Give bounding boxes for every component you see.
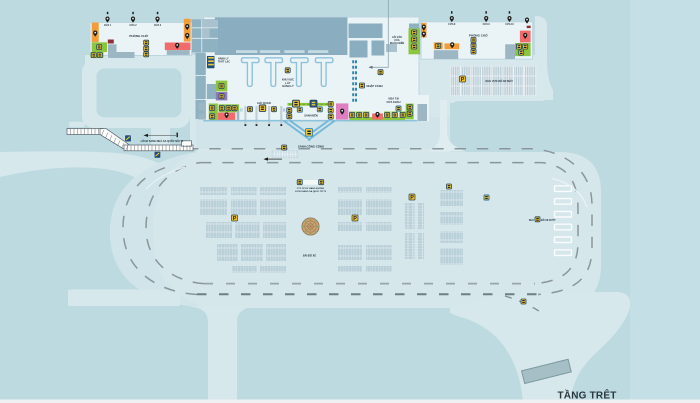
svg-text:PHÒNG CHỜ: PHÒNG CHỜ <box>129 33 148 38</box>
svg-text:CỬA 10: CỬA 10 <box>505 23 514 26</box>
svg-text:KHU VỰC: KHU VỰC <box>282 77 294 81</box>
svg-text:CỬA 1: CỬA 1 <box>104 24 112 27</box>
svg-text:SẢNH CÔNG CỘNG: SẢNH CÔNG CỘNG <box>298 144 324 149</box>
svg-text:TẦNG TRỆT: TẦNG TRỆT <box>557 388 616 401</box>
svg-text:CỬA 8: CỬA 8 <box>448 23 456 26</box>
svg-text:CỬA 2: CỬA 2 <box>129 24 137 27</box>
svg-text:CTY CP DV HÀNG KHÔNG: CTY CP DV HÀNG KHÔNG <box>297 187 325 190</box>
svg-text:THẤT LẠC: THẤT LẠC <box>218 61 230 64</box>
svg-text:ĐỖ XE BUÝT: ĐỖ XE BUÝT <box>541 219 556 222</box>
svg-text:LỐI ĐI SANG GA QUỐC TẾ T2: LỐI ĐI SANG GA QUỐC TẾ T2 <box>295 190 327 193</box>
svg-text:PHÒNG CHỜ: PHÒNG CHỜ <box>469 32 488 37</box>
svg-text:KHÁCH ĐẾN: KHÁCH ĐẾN <box>390 42 405 45</box>
svg-text:CỬA 9: CỬA 9 <box>483 23 491 26</box>
svg-text:LỐI ĐI SANG NHÀ GA QUỐC NỘI T1: LỐI ĐI SANG NHÀ GA QUỐC NỘI T1 <box>141 140 184 143</box>
svg-text:CỬA 3: CỬA 3 <box>154 24 162 27</box>
svg-text:KHU: KHU <box>529 219 534 222</box>
